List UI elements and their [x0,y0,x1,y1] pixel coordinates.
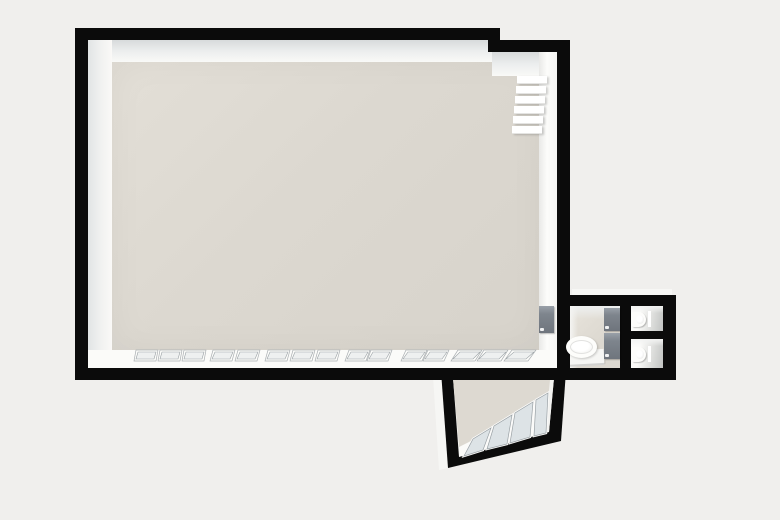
bathroom-sink [566,336,597,358]
annex-wall-bottom [557,368,676,380]
door-main-to-bathroom [539,306,554,333]
wall-bottom [75,368,570,380]
bottom-window-panes [134,350,536,361]
wc-room-top [631,306,663,331]
door-handle-icon [540,328,544,331]
annex-wall-divider-horizontal [631,331,663,339]
window-pane [292,352,313,359]
window-pane [212,352,233,359]
annex-wall-top [557,295,676,306]
window-pane [347,352,368,359]
window-pane [317,352,338,359]
window-pane [267,352,288,359]
wc-door-edge [648,346,651,362]
stair-step [515,96,545,104]
window-pane [237,352,258,359]
main-room-left-wall-face [86,40,112,370]
stair-step [513,116,543,124]
wall-top [75,28,500,40]
staircase [512,76,550,132]
cabinet-door-upper [604,308,620,331]
window-pane [184,352,204,359]
main-room-floor [108,56,545,354]
cabinet-door-lower [604,333,620,359]
stair-step [516,86,546,94]
window-pane [136,352,156,359]
wall-left [75,28,88,380]
bottom-window-row [100,344,560,370]
toilet-icon [632,347,646,362]
stair-step [517,76,547,84]
annex-wall-divider-vertical [620,303,631,370]
main-room-top-wall-face [86,38,492,62]
wc-door-edge [648,311,651,327]
floorplan-viewport[interactable] [0,0,780,520]
wc-top-wall-face [631,339,663,346]
wall-right [557,40,570,380]
window-pane [369,352,390,359]
door-handle-icon [605,354,609,357]
stair-step [512,126,542,134]
toilet-icon [632,312,646,327]
door-handle-icon [605,326,609,329]
stair-step [514,106,544,114]
window-pane [160,352,180,359]
wc-room-bottom [631,339,663,368]
